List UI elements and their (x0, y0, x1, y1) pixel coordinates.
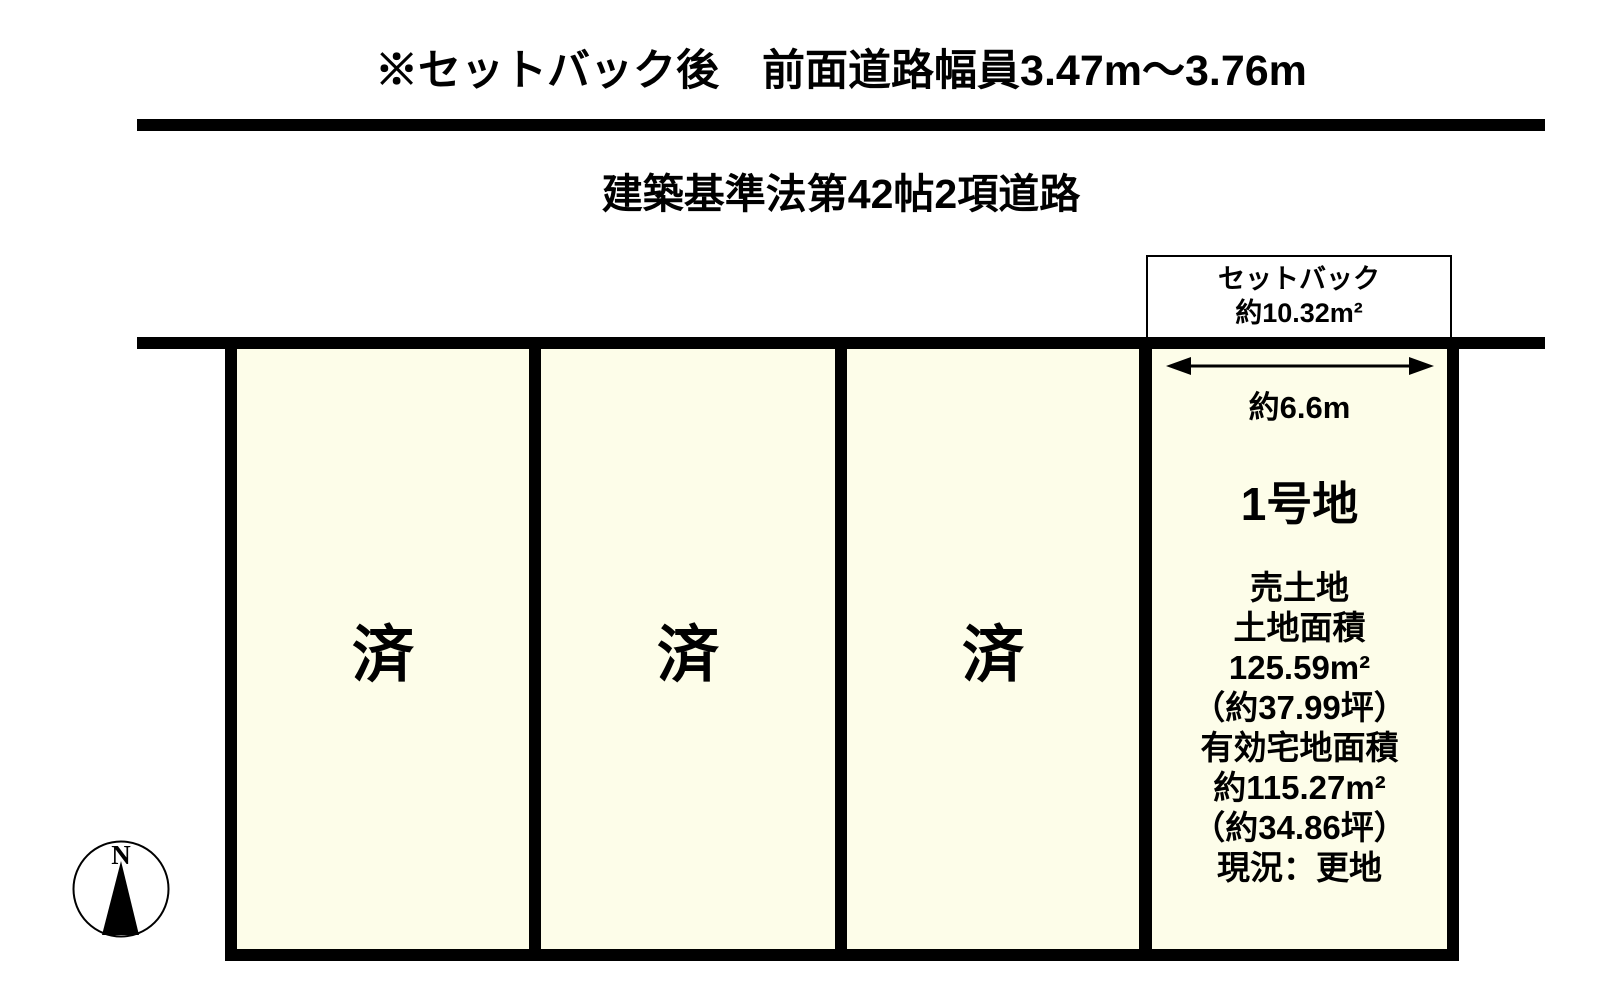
plot-sold-2: 済 (541, 349, 835, 949)
lot-detail-effective-area-label: 有効宅地面積 (1152, 728, 1447, 768)
setback-label: セットバック (1148, 262, 1450, 296)
lot-detail-effective-area-tsubo: （約34.86坪） (1152, 808, 1447, 848)
sold-label: 済 (962, 604, 1024, 694)
plot-sold-1: 済 (237, 349, 529, 949)
plot-sold-3: 済 (847, 349, 1139, 949)
sold-label: 済 (657, 604, 719, 694)
frontage-width-label: 約6.6m (1152, 382, 1447, 427)
lot-detail-sale-type: 売土地 (1152, 568, 1447, 608)
road-type-label: 建築基準法第42帖2項道路 (137, 160, 1545, 220)
lot-detail-effective-area-value: 約115.27m² (1152, 768, 1447, 808)
lot-name: 1号地 (1152, 468, 1447, 534)
sold-label: 済 (352, 604, 414, 694)
plot-lot-1: 約6.6m 1号地 売土地 土地面積 125.59m² （約37.99坪） 有効… (1152, 349, 1447, 949)
compass-north-icon: N (71, 837, 171, 939)
road-upper-edge-line (137, 119, 1545, 131)
lot-detail-current-state: 現況：更地 (1152, 848, 1447, 888)
lot-detail-land-area-tsubo: （約37.99坪） (1152, 688, 1447, 728)
setback-area-box: セットバック 約10.32m² (1146, 255, 1452, 339)
setback-area-value: 約10.32m² (1148, 296, 1450, 330)
lot-details: 売土地 土地面積 125.59m² （約37.99坪） 有効宅地面積 約115.… (1152, 568, 1447, 888)
frontage-dimension-arrow-icon (1165, 354, 1435, 378)
diagram-title: ※セットバック後 前面道路幅員3.47m～3.76m (137, 36, 1545, 98)
lot-detail-land-area-value: 125.59m² (1152, 648, 1447, 688)
lot-detail-land-area-label: 土地面積 (1152, 608, 1447, 648)
